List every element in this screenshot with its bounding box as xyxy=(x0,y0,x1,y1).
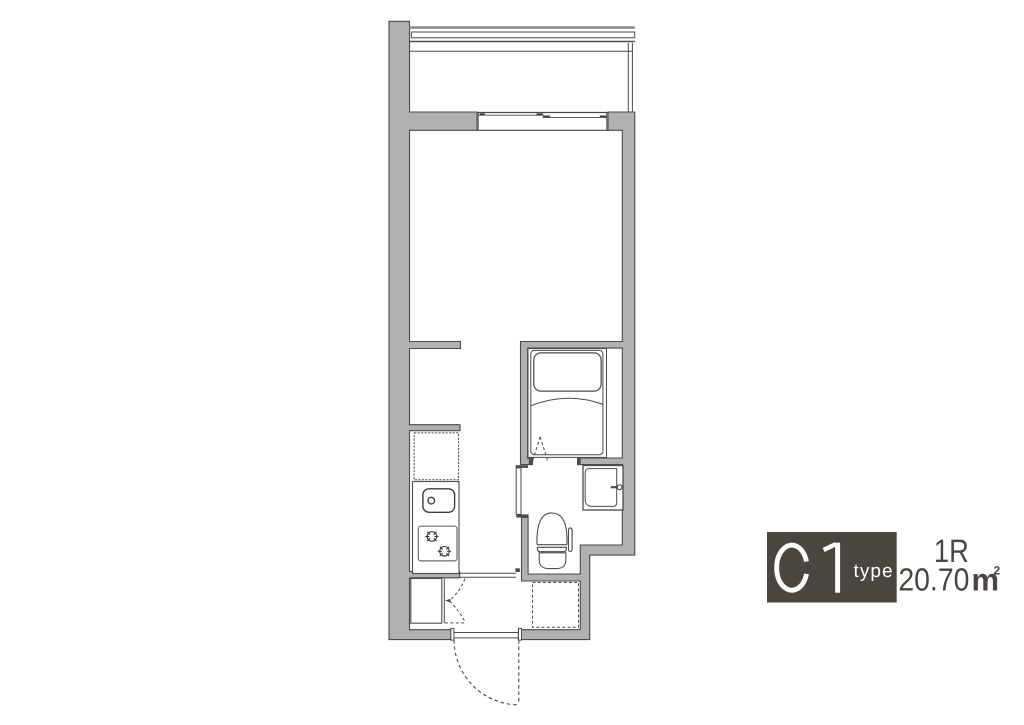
svg-text:2: 2 xyxy=(994,564,1001,578)
svg-text:20.70: 20.70 xyxy=(898,561,969,597)
svg-text:type: type xyxy=(854,561,894,582)
